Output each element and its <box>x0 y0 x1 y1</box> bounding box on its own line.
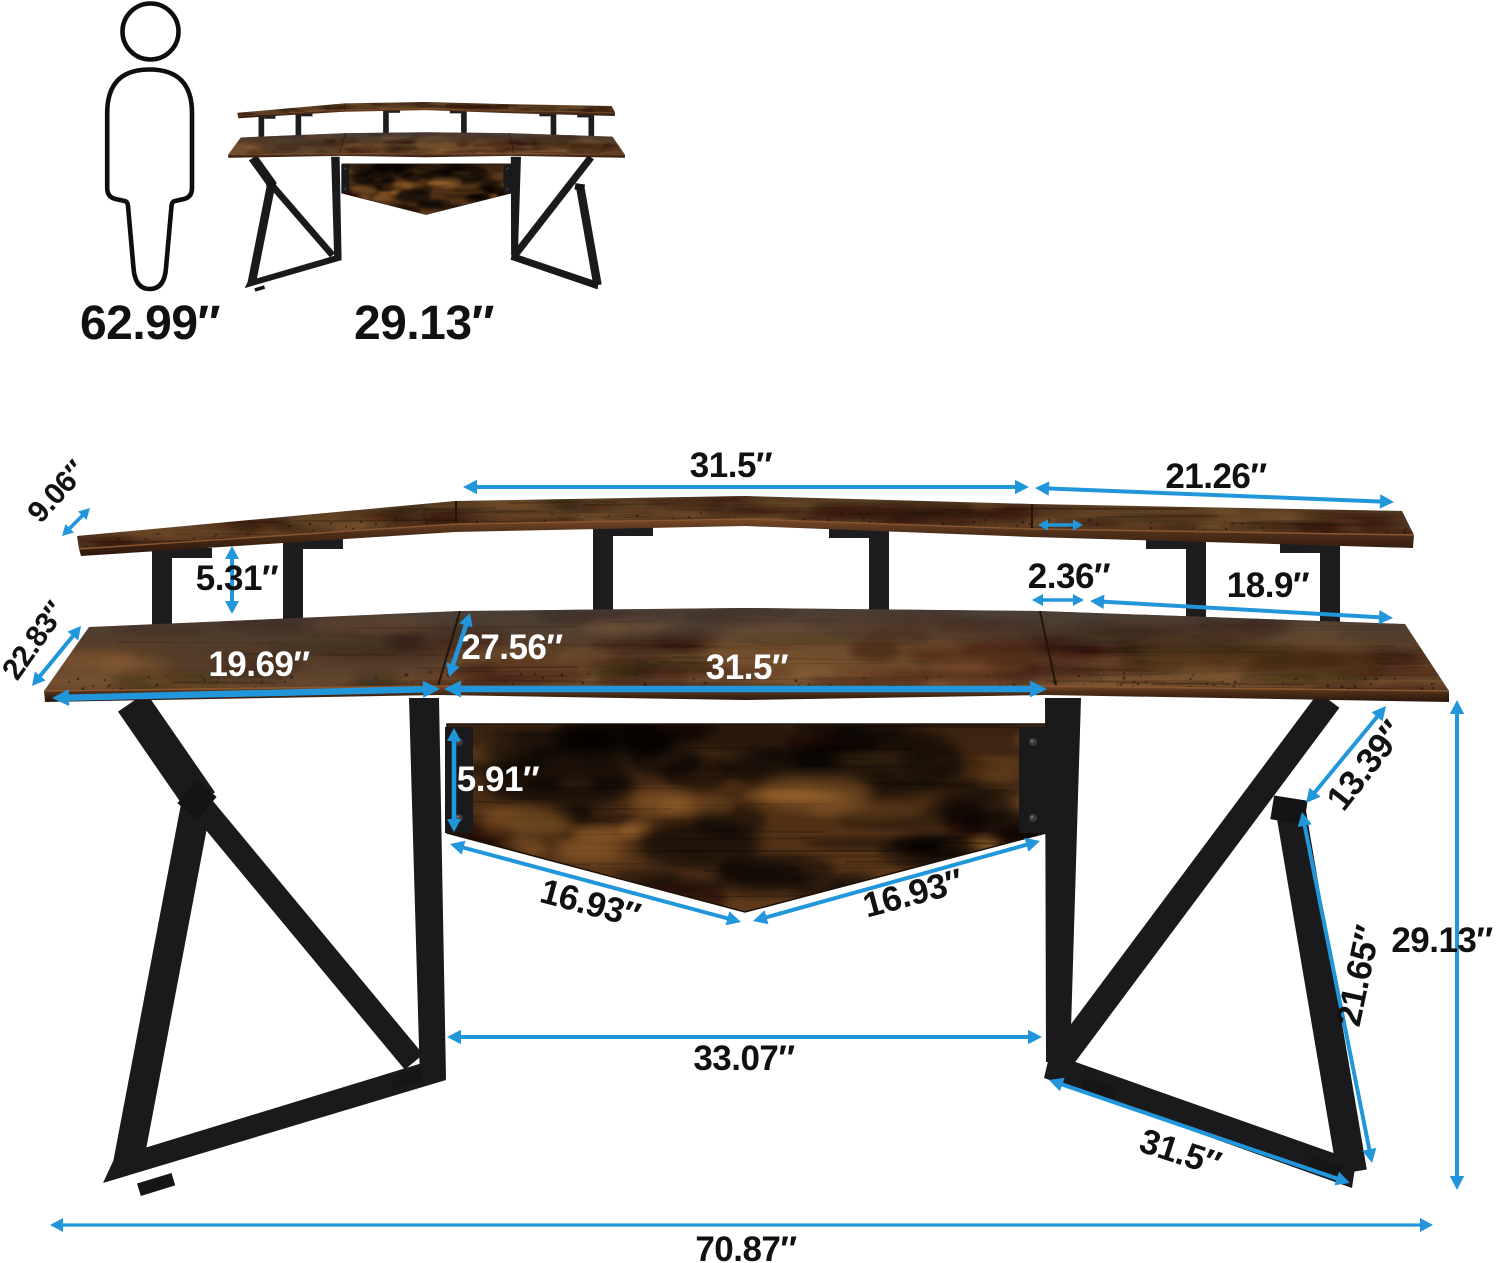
svg-text:62.99″: 62.99″ <box>80 297 221 350</box>
svg-text:5.31″: 5.31″ <box>196 559 279 598</box>
svg-text:2.36″: 2.36″ <box>1028 557 1111 596</box>
svg-text:5.91″: 5.91″ <box>457 760 540 799</box>
svg-text:70.87″: 70.87″ <box>695 1230 797 1263</box>
svg-text:21.26″: 21.26″ <box>1165 457 1267 496</box>
svg-text:31.5″: 31.5″ <box>690 446 773 485</box>
svg-text:29.13″: 29.13″ <box>1391 921 1493 960</box>
svg-text:18.9″: 18.9″ <box>1227 566 1310 605</box>
svg-text:29.13″: 29.13″ <box>354 297 495 350</box>
svg-text:33.07″: 33.07″ <box>693 1039 795 1078</box>
svg-text:27.56″: 27.56″ <box>461 628 563 667</box>
svg-text:19.69″: 19.69″ <box>208 645 310 684</box>
svg-text:31.5″: 31.5″ <box>706 648 789 687</box>
